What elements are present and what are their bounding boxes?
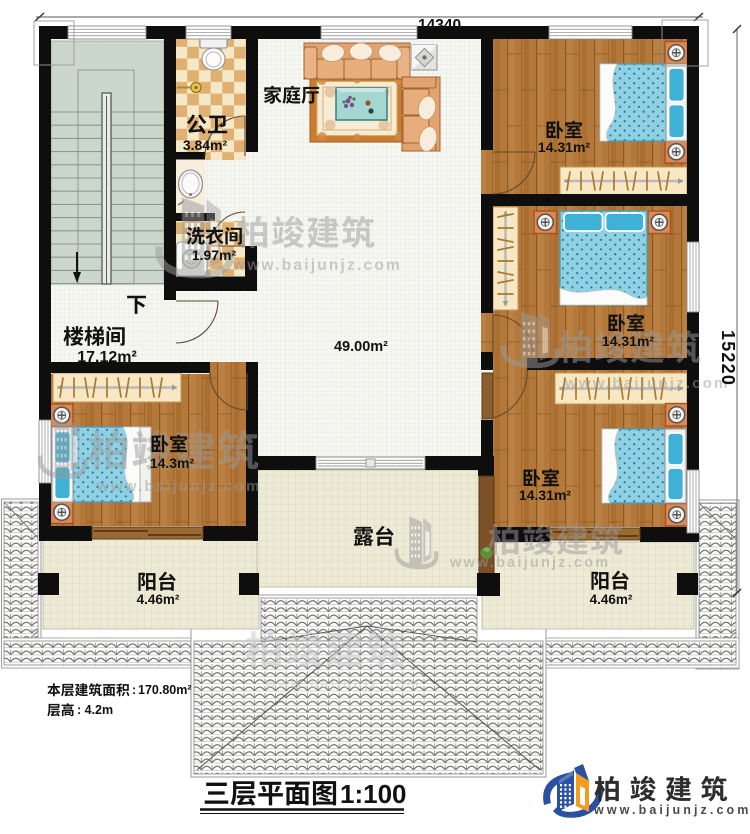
svg-text:1:100: 1:100 xyxy=(340,779,407,809)
svg-text:www.baijunjz.com: www.baijunjz.com xyxy=(264,675,421,691)
svg-text:15220: 15220 xyxy=(718,330,738,386)
svg-text:14.31m²: 14.31m² xyxy=(519,487,571,503)
svg-text:4.46m²: 4.46m² xyxy=(590,592,633,607)
svg-text:14.3m²: 14.3m² xyxy=(150,455,195,471)
svg-text:www.baijunjz.com: www.baijunjz.com xyxy=(564,375,730,392)
svg-text:www.baijunjz.com: www.baijunjz.com xyxy=(593,803,750,817)
svg-text:: 4.2m: : 4.2m xyxy=(77,703,113,717)
svg-text:www.baijunjz.com: www.baijunjz.com xyxy=(96,478,262,495)
svg-text:www.baijunjz.com: www.baijunjz.com xyxy=(232,257,402,274)
svg-text:4.46m²: 4.46m² xyxy=(137,592,180,607)
svg-text:14.31m²: 14.31m² xyxy=(602,333,654,349)
svg-text::: : xyxy=(132,683,136,697)
svg-text:14.31m²: 14.31m² xyxy=(538,139,590,155)
svg-text:170.80m²: 170.80m² xyxy=(138,683,192,697)
svg-text:www.baijunjz.com: www.baijunjz.com xyxy=(449,555,610,571)
svg-text:14340: 14340 xyxy=(418,17,461,34)
svg-text:17.12m²: 17.12m² xyxy=(77,349,137,366)
svg-text:3.84m²: 3.84m² xyxy=(183,137,228,153)
svg-text:49.00m²: 49.00m² xyxy=(334,339,388,355)
svg-text:1.97m²: 1.97m² xyxy=(192,247,237,263)
